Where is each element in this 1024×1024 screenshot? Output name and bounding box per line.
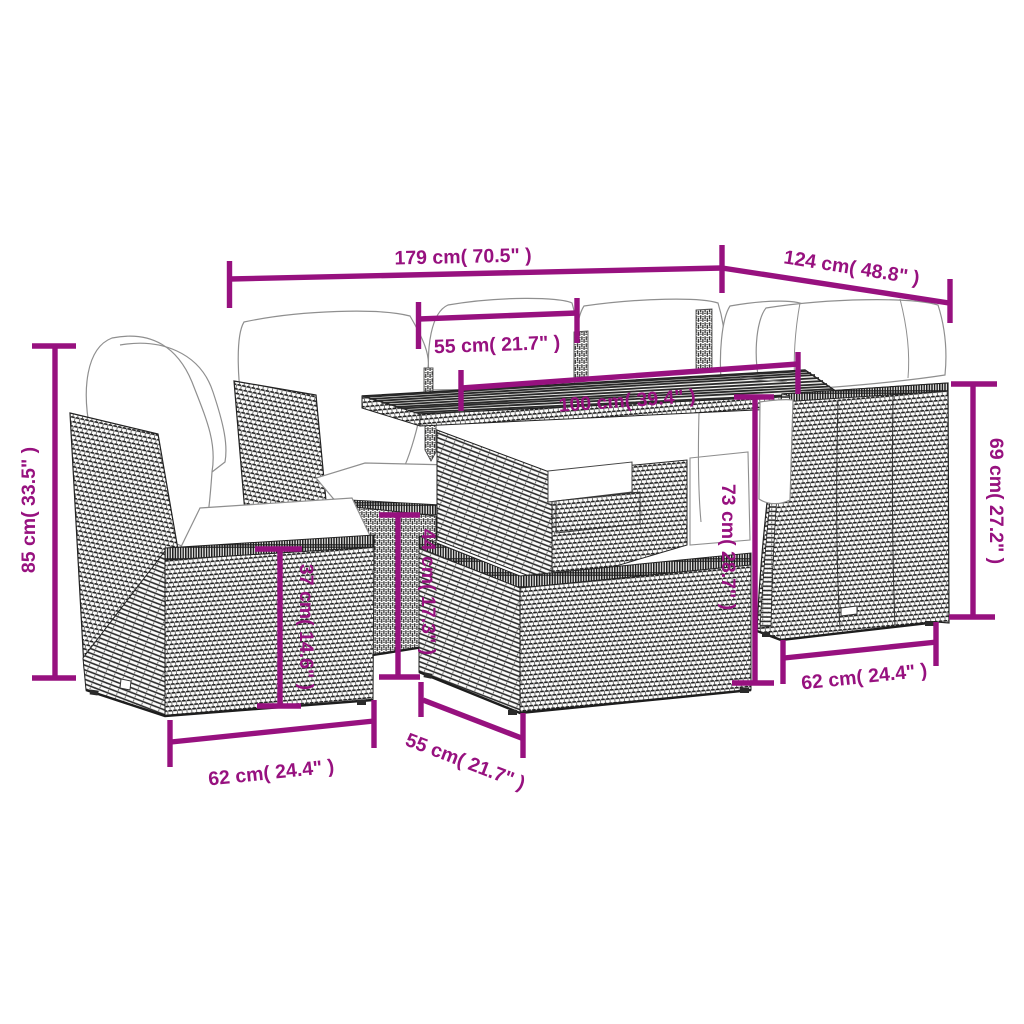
svg-text:69 cm( 27.2" ): 69 cm( 27.2" ) bbox=[985, 438, 1007, 564]
svg-text:73 cm( 28.7" ): 73 cm( 28.7" ) bbox=[717, 484, 739, 610]
svg-text:37 cm( 14.6" ): 37 cm( 14.6" ) bbox=[295, 564, 317, 690]
svg-text:85 cm( 33.5" ): 85 cm( 33.5" ) bbox=[18, 447, 40, 573]
svg-text:179 cm( 70.5" ): 179 cm( 70.5" ) bbox=[394, 244, 532, 269]
svg-text:44 cm( 17.3" ): 44 cm( 17.3" ) bbox=[417, 529, 439, 655]
svg-text:55 cm( 21.7" ): 55 cm( 21.7" ) bbox=[434, 332, 561, 358]
